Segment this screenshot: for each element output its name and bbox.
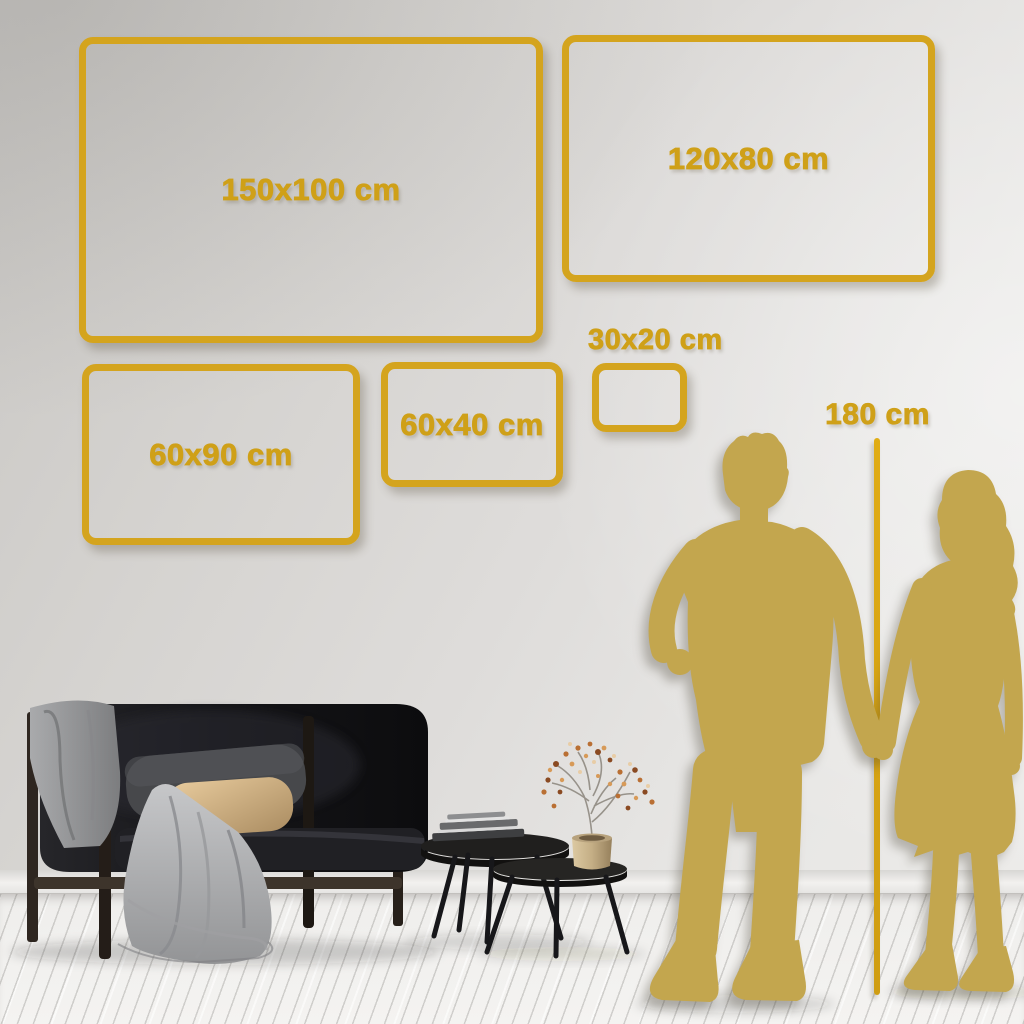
size-label-150x100: 150x100 cm [221,172,400,208]
wood-floor [0,894,1024,1024]
size-label-60x90: 60x90 cm [149,437,293,473]
size-label-30x20: 30x20 cm [588,324,723,357]
size-guide-scene: 150x100 cm 120x80 cm 60x90 cm 60x40 cm 3… [0,0,1024,1024]
size-frame-120x80: 120x80 cm [562,35,935,282]
size-label-60x40: 60x40 cm [400,407,544,443]
size-frame-60x90: 60x90 cm [82,364,360,545]
size-frame-150x100: 150x100 cm [79,37,543,343]
height-label: 180 cm [790,398,965,432]
size-frame-60x40: 60x40 cm [381,362,563,487]
height-reference-line [874,438,880,995]
size-frame-30x20 [592,363,687,432]
baseboard [0,870,1024,894]
size-label-120x80: 120x80 cm [668,141,829,177]
